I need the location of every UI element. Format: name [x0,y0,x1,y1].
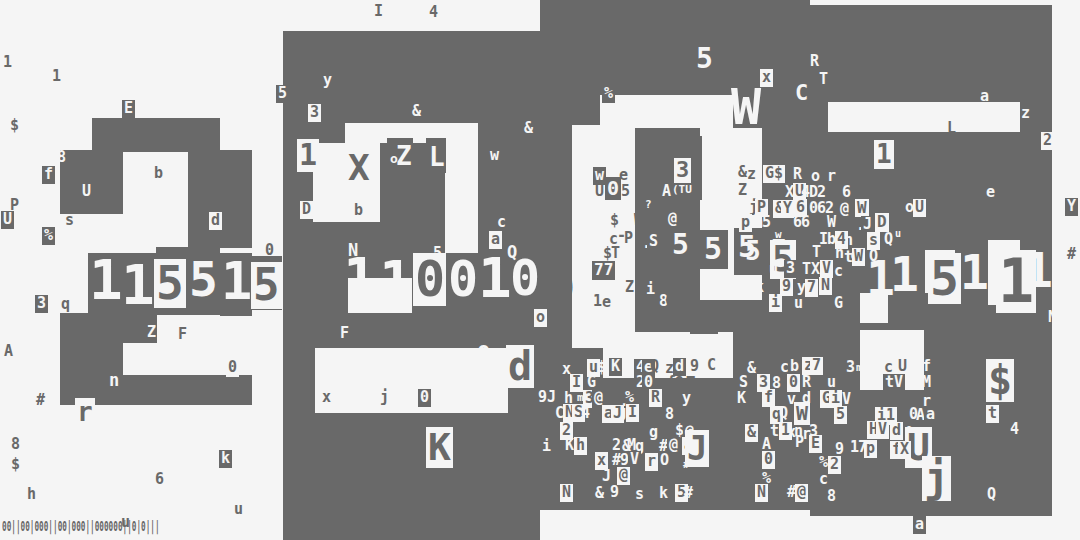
glyph: C [795,82,808,104]
glyph: G [834,296,843,311]
glyph: P [624,231,633,246]
glyph: F [340,326,349,341]
glyph: X [348,150,370,186]
glyph: n [109,372,119,389]
glyph: q [61,297,70,312]
glyph: R [802,375,811,390]
glyph: c [497,215,506,230]
block-light [600,95,733,128]
glyph: (TU [672,184,692,195]
glyph: 5 [276,85,289,103]
glyph: % [640,294,649,309]
glyph: 2 [817,185,826,200]
glyph: 6 [842,185,851,200]
glyph: % [42,227,55,245]
glyph: 1 [960,248,989,296]
glyph: 8 [11,437,20,452]
glyph: N [560,484,573,502]
glyph: Z [147,325,156,340]
glyph: 8 [665,407,674,422]
glyph: $ [986,359,1014,402]
glyph: Y [1065,198,1078,216]
glyph: % [819,455,828,470]
glyph: Q [650,359,659,374]
glyph: Q [779,406,788,421]
glyph: $ [597,360,606,375]
glyph: 0 [418,389,431,407]
glyph: R [810,54,819,69]
glyph: j [922,456,951,501]
glyph: 6 [697,378,706,393]
glyph: U [595,184,604,199]
glyph: 3 [784,260,797,278]
glyph: G$ [763,165,785,183]
glyph: K [737,391,746,406]
glyph: N [755,484,768,502]
glyph: o [534,309,547,327]
glyph: @ [666,211,679,229]
glyph: u [234,502,243,517]
glyph: x [322,390,331,405]
glyph: 0 [762,451,775,469]
glyph: 1 [1024,246,1053,294]
glyph: d [506,345,534,388]
glyph: u [895,229,901,239]
glyph: N [819,277,832,295]
glyph: 1 [121,257,155,313]
glyph: 3 [846,360,855,375]
glyph: y [682,391,691,406]
glyph: X [898,441,911,459]
glyph: I [626,404,639,422]
glyph: @ [795,484,808,502]
glyph: U [913,199,926,217]
glyph: & [738,165,747,180]
glyph: K [426,427,453,468]
glyph: s [65,213,74,228]
glyph: a [924,406,937,424]
glyph: p [864,440,877,458]
glyph: W [827,215,836,230]
glyph: T [812,245,821,260]
glyph: A [4,344,13,359]
glyph: 5 [672,231,689,259]
glyph: K [651,213,660,228]
glyph: U [1,211,14,229]
glyph: L [429,144,445,170]
glyph: I [374,4,383,19]
glyph: E [809,435,822,453]
glyph: R [649,389,662,407]
glyph: N [1048,310,1057,325]
glyph: 4 [1010,422,1019,437]
glyph: z [1021,106,1030,121]
glyph: 9 [538,390,547,405]
glyph: 5 [187,254,220,305]
glyph: P [795,435,804,450]
glyph: L [947,121,956,136]
glyph: ? [643,198,654,212]
glyph: u [827,375,836,390]
glyph: # [36,393,45,408]
glyph: 1 [890,250,919,298]
glyph: 1 [52,69,61,84]
glyph: 5 [696,45,713,73]
glyph: T [802,262,811,277]
glyph: p [739,214,752,232]
glyph: 3 [35,295,48,313]
glyph: w [488,147,501,165]
glyph: & [595,486,604,501]
glyph: b [672,262,681,277]
glyph: z [747,167,756,182]
glyph: 8 [827,489,836,504]
glyph: r [75,398,95,427]
glyph: 0 [226,359,239,377]
glyph: f [42,166,55,184]
glyph: 1 [221,255,252,307]
glyph: T [819,72,828,87]
glyph: 0 [446,253,480,306]
glyph: b [154,166,163,181]
glyph: 4 [429,5,438,20]
glyph: 3 [674,158,691,183]
glyph: O [660,453,669,468]
glyph: 3 [308,104,321,122]
glyph: 8 [673,294,682,309]
glyph: 9 [610,485,619,500]
glyph: K [565,438,574,453]
glyph: u [794,296,803,311]
glyph: t [986,405,999,423]
glyph: U [82,184,91,199]
glyph: S [739,375,748,390]
glyph: 3 [696,303,715,335]
glyph: U [898,359,907,374]
glyph: 77 [592,261,615,280]
block-dark [60,150,123,214]
glyph: $ [11,457,20,472]
glyph: a [913,516,926,534]
glyph: g [649,425,658,440]
glyph: e [986,185,995,200]
glyph: 6 [801,215,810,230]
glyph: b [354,203,363,218]
glyph: 5 [745,238,761,264]
glyph: @ [840,202,849,217]
glyph: h [574,437,587,455]
glyph: & [412,104,421,119]
glyph: L [651,182,660,197]
glyph: W [852,248,865,266]
glyph: C [477,372,490,394]
glyph: e [602,295,611,310]
glyph: d [209,212,222,230]
glyph: $ [10,118,19,133]
glyph: m [856,362,863,373]
glyph: a [980,89,989,104]
glyph: 5 [704,234,722,264]
glyph: J [602,469,611,484]
glyph: 1 [297,139,319,172]
glyph: 1 [593,294,602,309]
glyph: 5 [762,215,771,230]
glyph: 5 [621,184,630,199]
glyph: E [122,100,135,118]
block-dark [188,150,252,248]
glyph: 5 [154,259,186,308]
glyph: y [323,73,332,88]
glitch-canvas: I411$E8fUbPUs%d03qAZF0n#r8$k6huu1155155y… [0,0,1080,540]
glyph: h [27,487,36,502]
glyph: k [755,280,764,295]
glyph: # [683,459,690,470]
block-light [445,143,478,253]
glyph: 6 [155,472,164,487]
glyph: 1 [379,253,413,309]
glyph: 2 [427,313,436,328]
glyph: 8 [57,150,66,165]
glyph: S [647,233,660,251]
glyph: k [659,486,668,501]
glyph: X [811,262,820,277]
glyph: 0 [413,253,447,306]
glyph: x [760,69,773,87]
glyph: A [660,183,673,201]
glyph: D [300,201,313,219]
glyph: 1 [343,250,377,306]
glyph: u [769,262,778,277]
glyph: % [602,85,615,103]
glyph: # [684,486,693,501]
glyph: c [819,472,828,487]
block-dark [92,118,220,152]
glyph: 9 [553,270,575,306]
glyph: r [645,453,658,471]
glyph: J [547,390,556,405]
glyph: O [477,343,490,365]
glyph: # [1067,247,1076,262]
glyph: 0 [510,253,540,303]
glyph: 7 [874,392,883,407]
glyph: i [542,439,551,454]
glyph: r [827,169,836,184]
glyph: Z [625,280,634,295]
glyph: c [834,264,843,279]
glyph: m [890,392,899,407]
glyph: 2 [828,456,841,474]
glyph: 0 [265,243,274,258]
glyph: & [745,424,758,442]
glyph: 5 [251,262,282,309]
glyph: 1 [89,252,123,308]
glyph: o [811,169,820,184]
glyph: t [770,424,779,439]
glyph: W [731,82,761,132]
glyph: i [769,294,782,312]
glyph: 7 [805,279,818,297]
glyph: s [635,487,644,502]
glyph: 2 [1041,132,1054,150]
glyph: K [609,358,622,376]
glyph: 1 [478,250,512,306]
glyph: 7 [810,357,823,375]
glyph: Z [738,183,747,198]
glyph: 5 [928,253,961,304]
glyph: k [219,450,232,468]
glyph: T [611,246,620,261]
glyph: Q [884,232,893,247]
glyph: & [448,326,457,341]
glyph: Z [396,143,412,169]
glyph: V [876,421,889,439]
glyph: W [634,213,643,228]
glyph: G [587,375,596,390]
glyph: f [922,359,931,374]
glyph: M [922,375,931,390]
block-light [828,102,1020,132]
glyph: & [524,121,533,136]
glyph: j [380,390,389,405]
binary-strip: 00||00|000||00|000||000000||0|0||| [2,519,160,533]
glyph: d [890,422,903,440]
glyph: 4 [581,406,590,421]
glyph: Q [987,487,996,502]
glyph: C [707,358,716,373]
glyph: R [793,167,802,182]
glyph: 5 [834,406,847,424]
glyph: 0 [605,177,621,200]
glyph: 1 [874,140,894,169]
glyph: F [178,327,187,342]
glyph: 1 [3,55,12,70]
glyph: h [835,246,844,261]
block-light [540,510,555,540]
